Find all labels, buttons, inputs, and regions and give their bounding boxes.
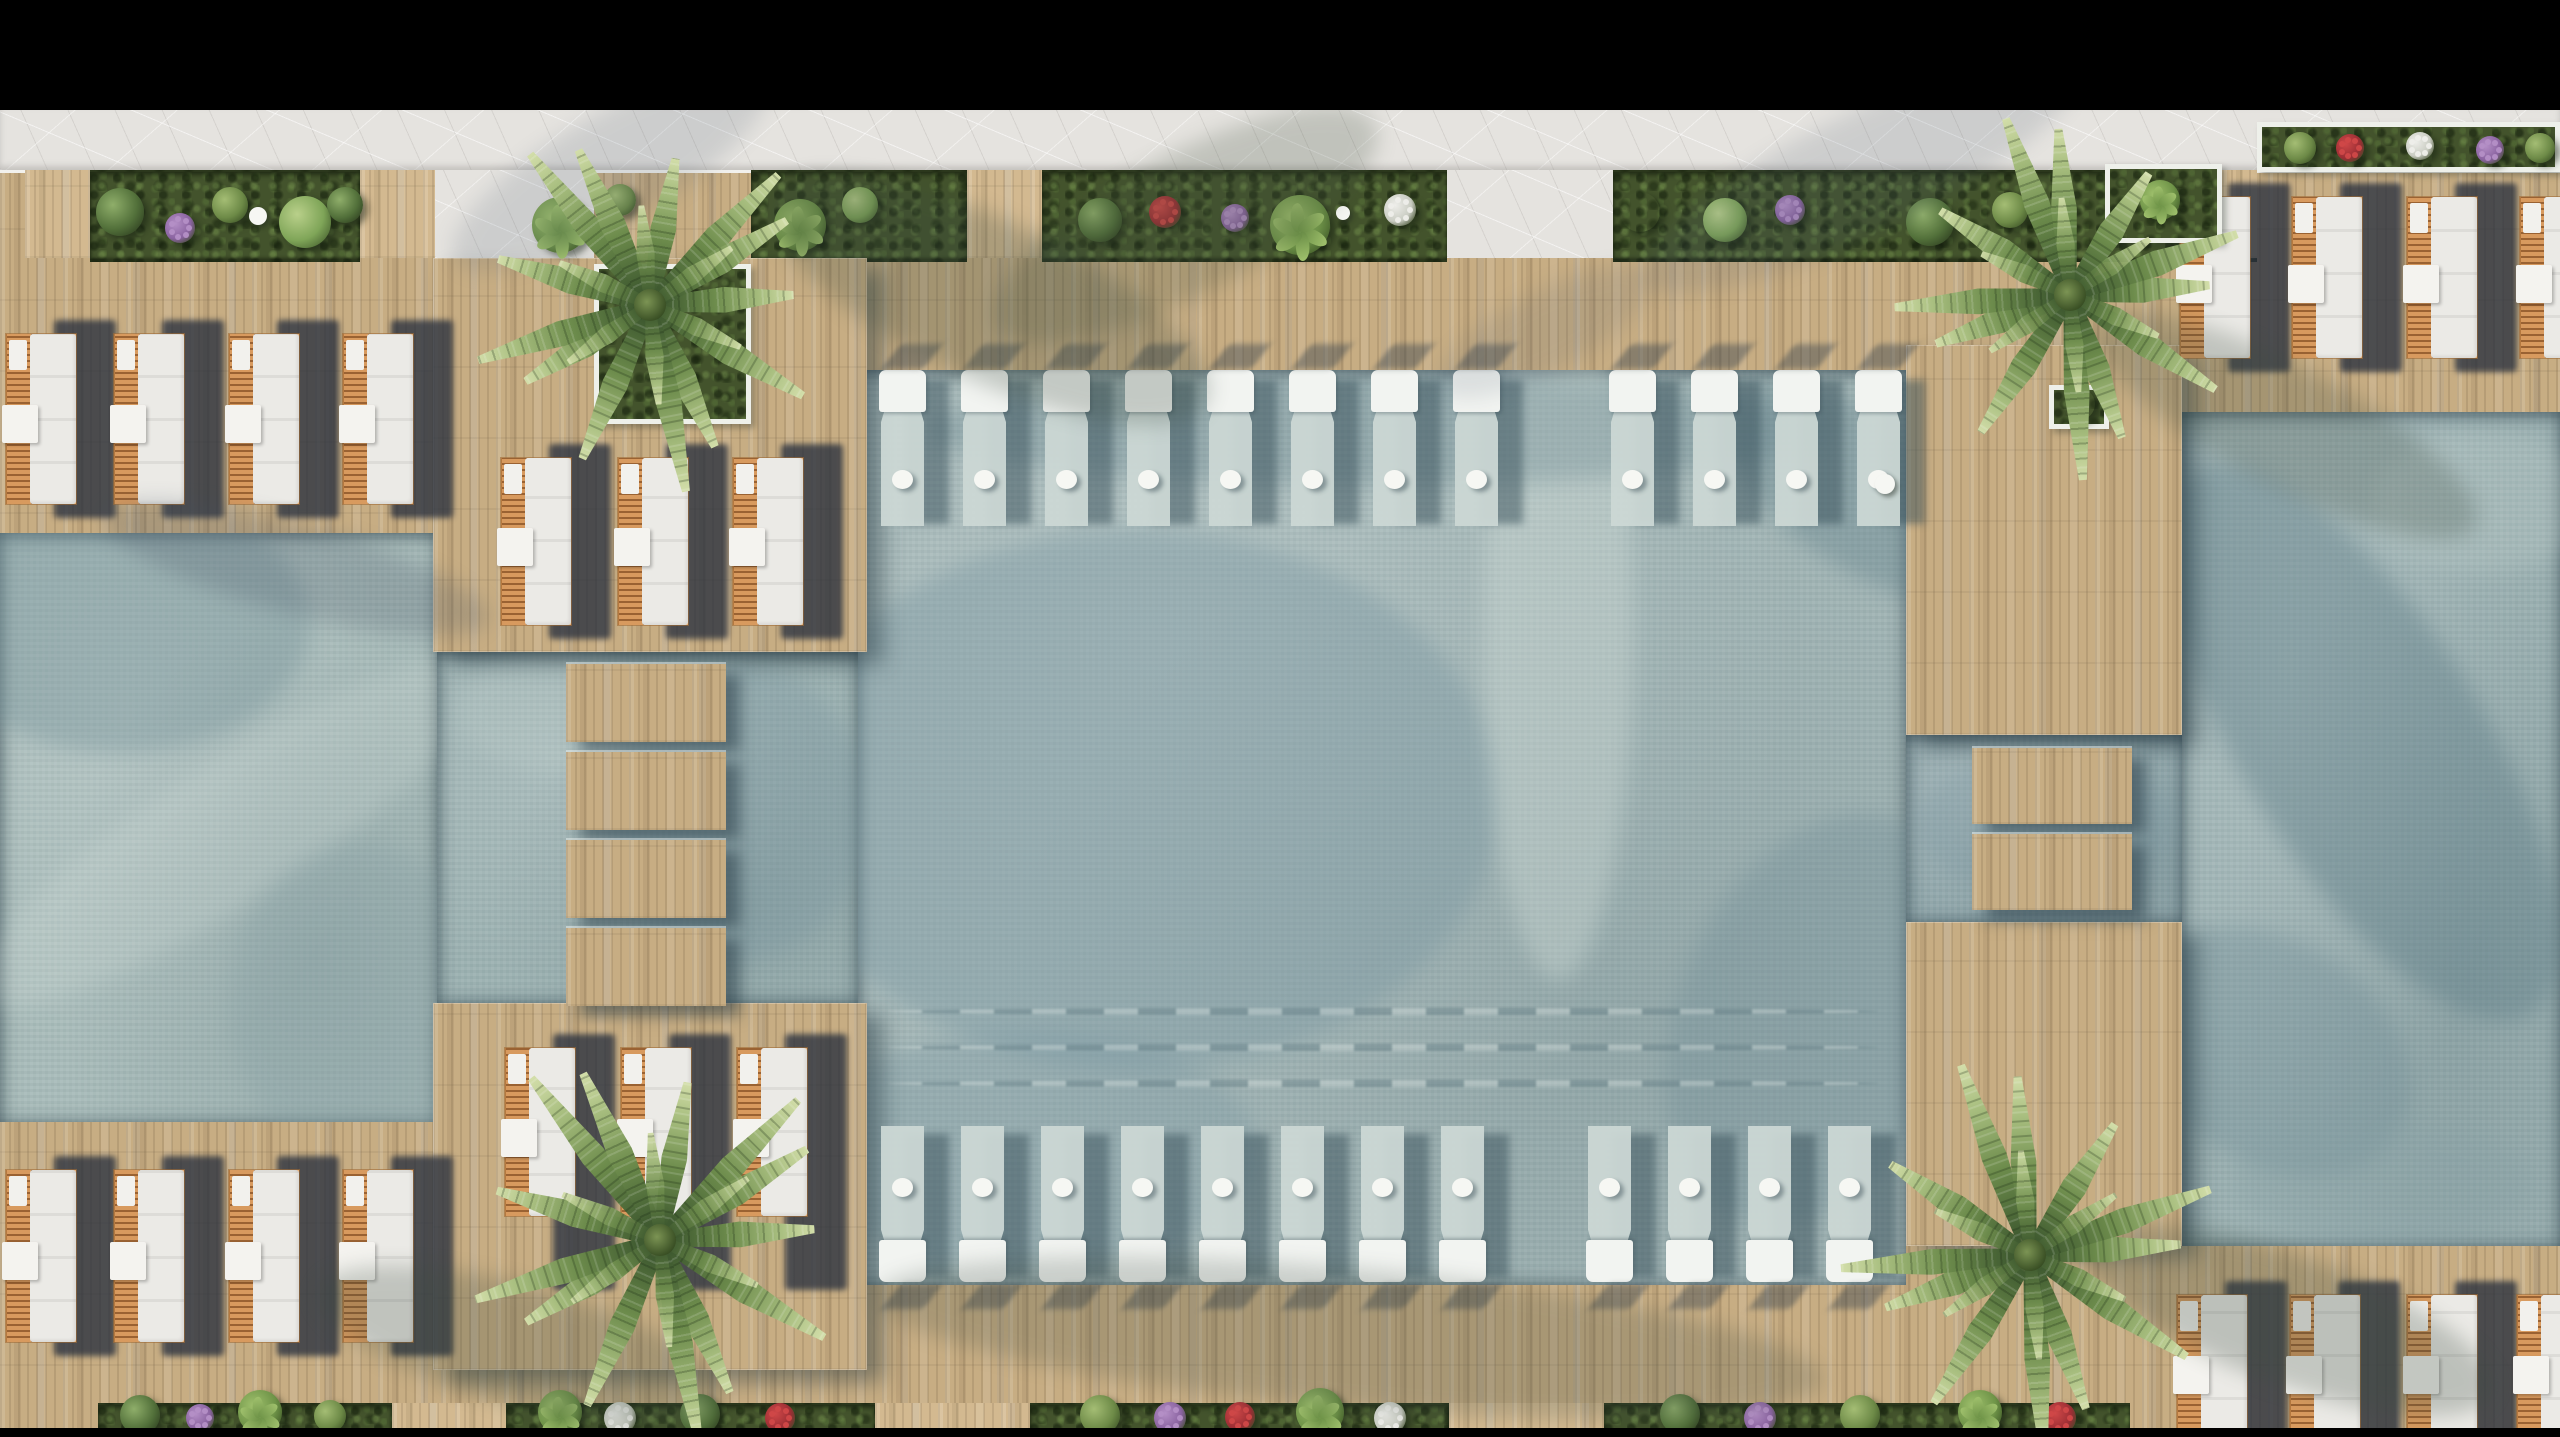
palm-crown [2054, 279, 2086, 311]
palm-crown [644, 1224, 676, 1256]
letterbox-bar-top [0, 0, 2560, 110]
palm-crown [634, 289, 666, 321]
palm-layer [0, 0, 2560, 1437]
letterbox-bar-bottom [0, 1428, 2560, 1437]
resort-pool-aerial-scene [0, 0, 2560, 1437]
palm-crown [2014, 1239, 2046, 1271]
